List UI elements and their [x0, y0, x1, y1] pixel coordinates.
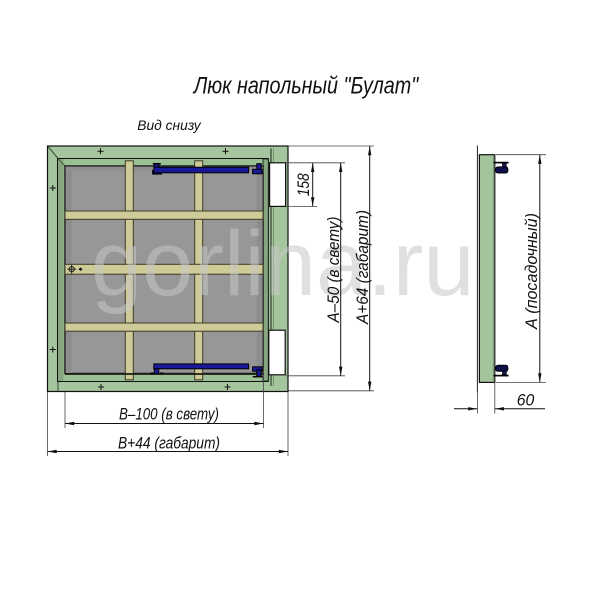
svg-text:А (посадочный): А (посадочный): [523, 213, 541, 330]
svg-text:Люк напольный "Булат": Люк напольный "Булат": [192, 73, 419, 100]
svg-text:А–50 (в свету): А–50 (в свету): [325, 217, 343, 324]
svg-text:60: 60: [517, 390, 535, 409]
svg-text:gorlina.ru: gorlina.ru: [91, 213, 475, 315]
svg-text:В–100 (в свету): В–100 (в свету): [119, 406, 219, 424]
svg-text:В+44 (габарит): В+44 (габарит): [118, 435, 220, 453]
svg-text:А+64 (габарит): А+64 (габарит): [354, 210, 372, 325]
svg-text:Вид снизу: Вид снизу: [137, 118, 201, 133]
svg-text:158: 158: [295, 173, 313, 197]
